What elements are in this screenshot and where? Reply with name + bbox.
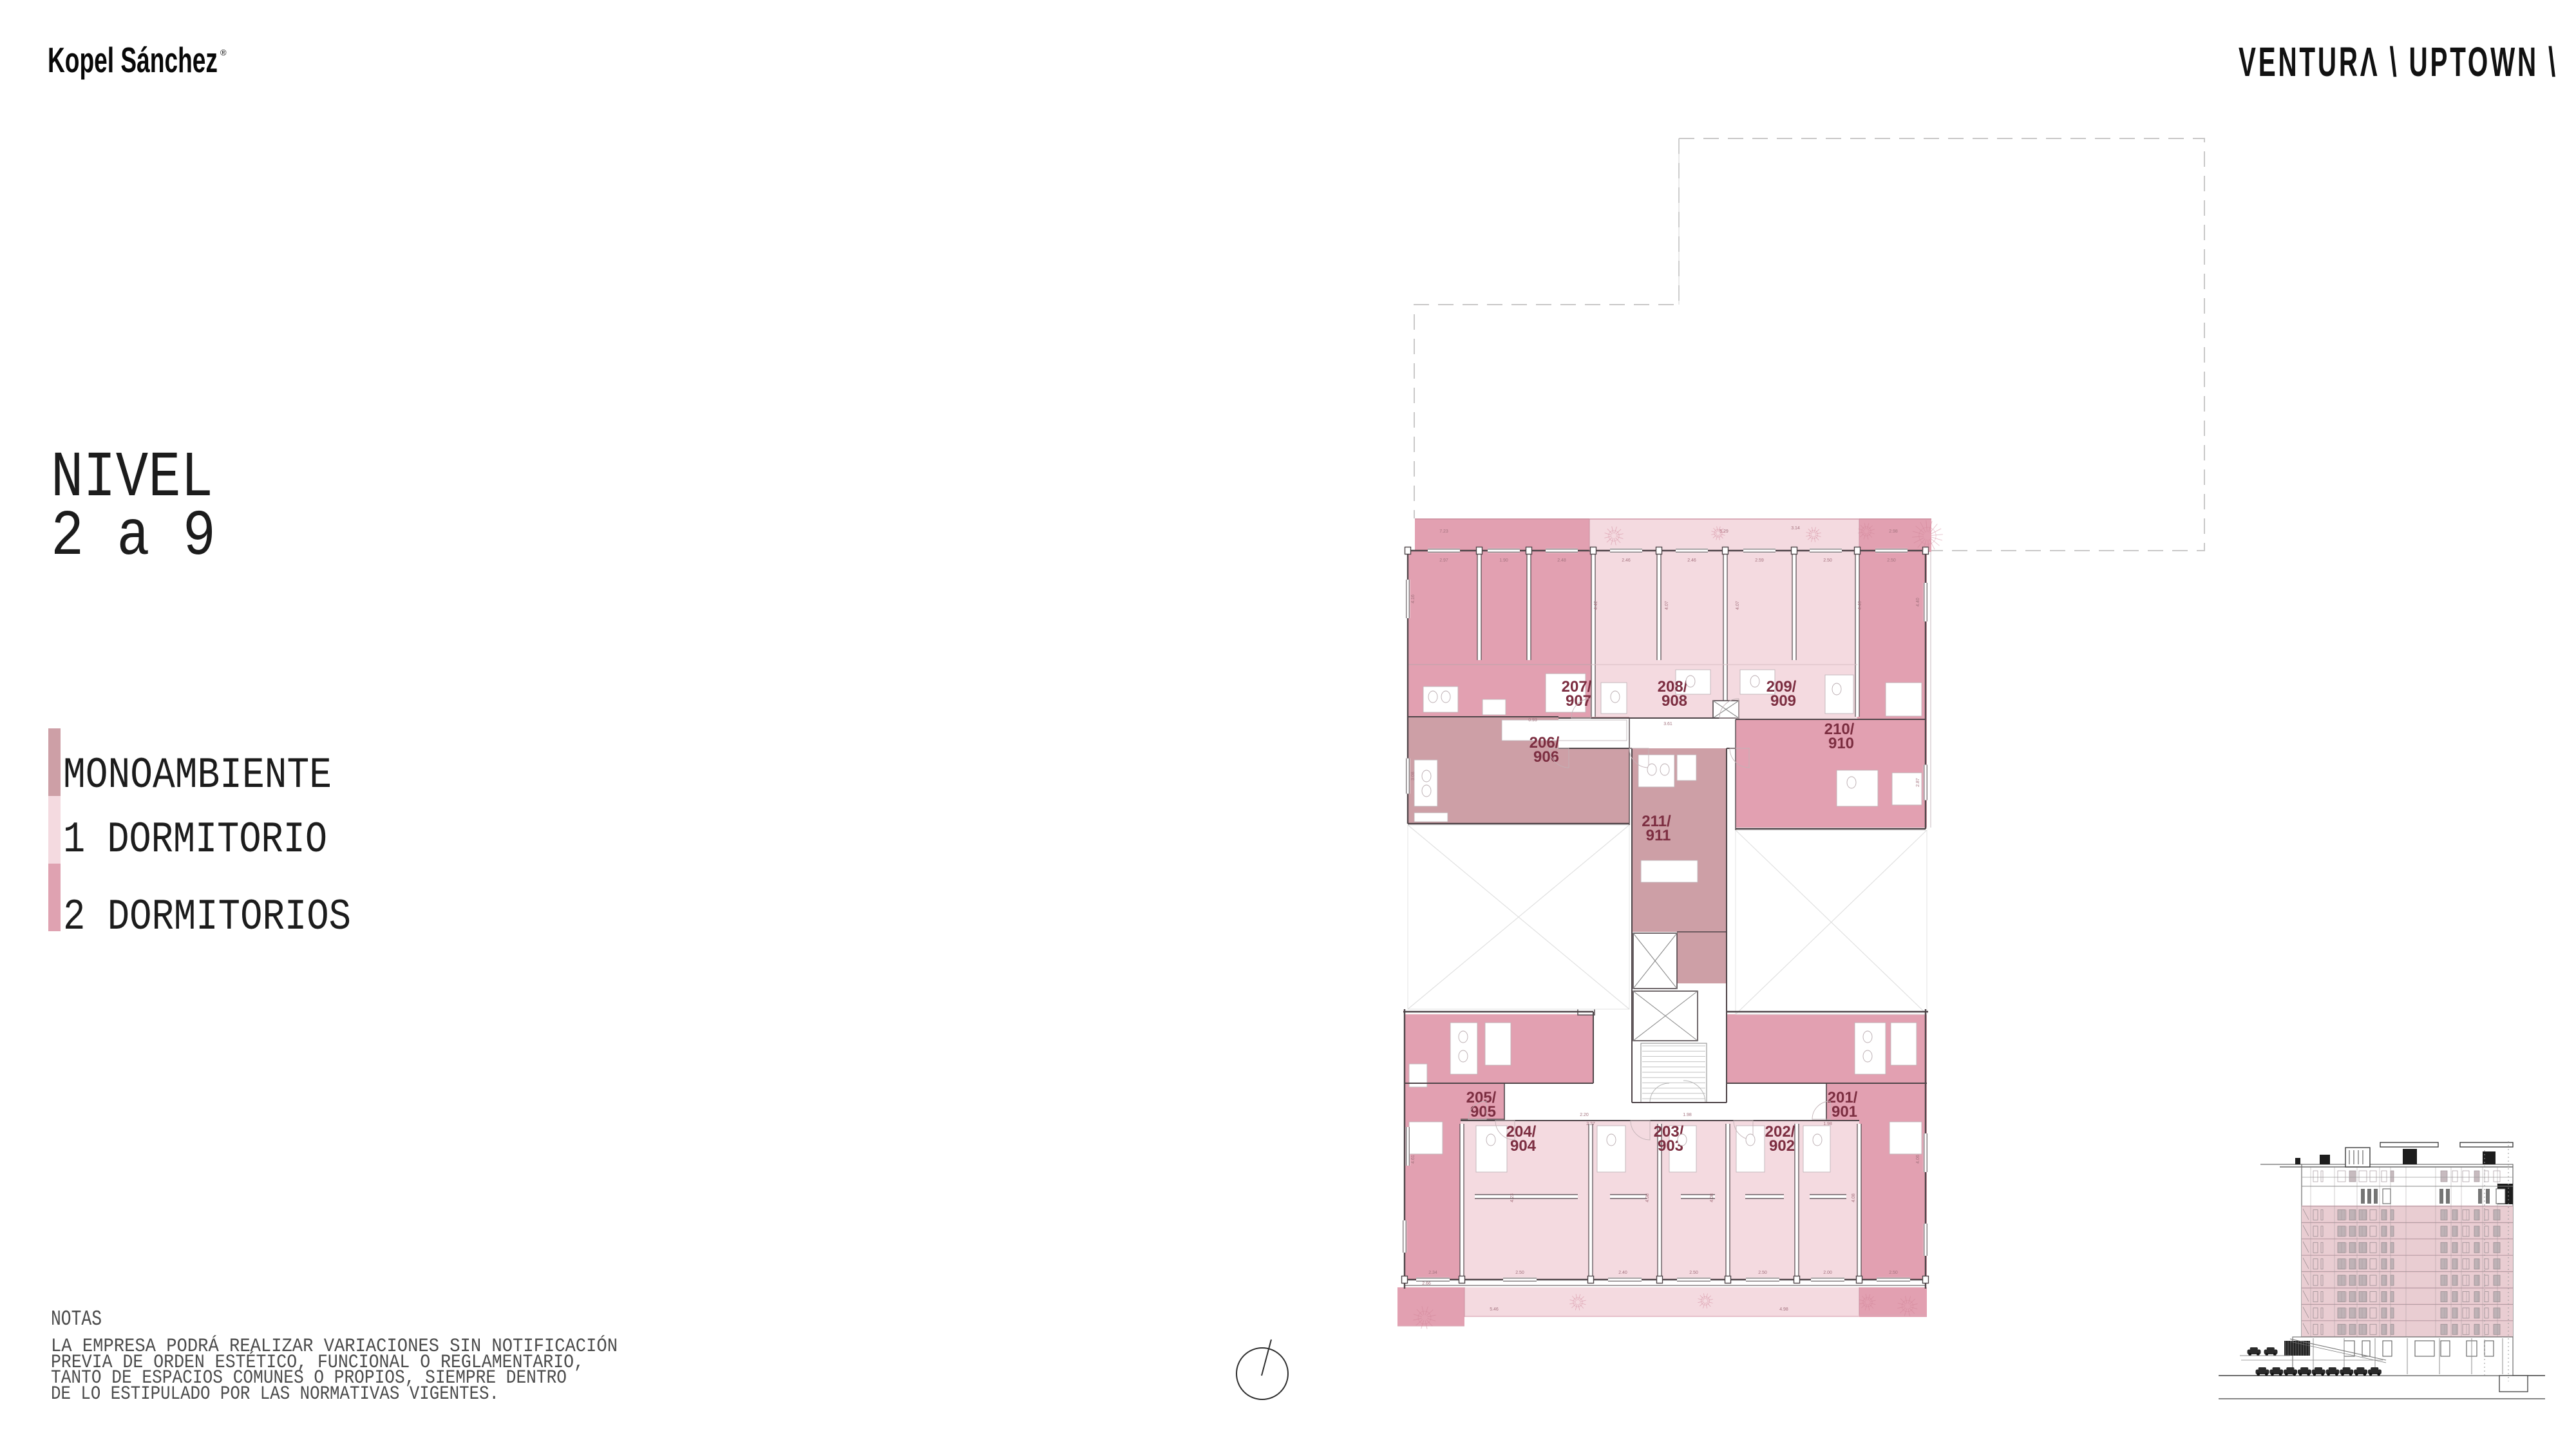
- svg-text:4.07: 4.07: [1736, 601, 1740, 610]
- svg-text:5.46: 5.46: [1490, 1307, 1499, 1312]
- svg-text:908: 908: [1662, 692, 1687, 710]
- svg-text:4.07: 4.07: [1665, 601, 1669, 610]
- svg-text:901: 901: [1832, 1103, 1857, 1121]
- svg-text:VENTURΛ \ UPTOWN \: VENTURΛ \ UPTOWN \: [2239, 39, 2558, 85]
- svg-text:2.00: 2.00: [1823, 1271, 1832, 1275]
- svg-text:2.46: 2.46: [1687, 558, 1696, 563]
- svg-text:1.98: 1.98: [1683, 1113, 1692, 1117]
- svg-text:2.50: 2.50: [1515, 1271, 1524, 1275]
- svg-text:2.98: 2.98: [1889, 529, 1898, 534]
- svg-text:1 DORMITORIO: 1 DORMITORIO: [63, 815, 327, 865]
- svg-text:2.50: 2.50: [1889, 1271, 1898, 1275]
- svg-text:4.42: 4.42: [1594, 601, 1598, 610]
- svg-text:4.40: 4.40: [1916, 598, 1920, 607]
- svg-text:4.08: 4.08: [1645, 1193, 1650, 1202]
- svg-text:2 a 9: 2 a 9: [51, 501, 216, 574]
- svg-text:4.98: 4.98: [1779, 1307, 1788, 1312]
- svg-text:1.90: 1.90: [1499, 558, 1508, 563]
- svg-text:2.46: 2.46: [1622, 558, 1631, 563]
- svg-text:2.50: 2.50: [1887, 558, 1896, 563]
- svg-text:2.34: 2.34: [1428, 1271, 1437, 1275]
- svg-text:®: ®: [220, 48, 227, 57]
- svg-text:2.87: 2.87: [1916, 778, 1920, 787]
- svg-text:907: 907: [1566, 692, 1591, 710]
- svg-text:2.20: 2.20: [1580, 1113, 1589, 1117]
- svg-text:Kopel Sánchez: Kopel Sánchez: [48, 40, 218, 80]
- svg-text:4.16: 4.16: [1411, 594, 1416, 603]
- svg-text:MONOAMBIENTE: MONOAMBIENTE: [63, 751, 332, 800]
- svg-text:2.59: 2.59: [1755, 558, 1764, 563]
- svg-text:DE LO ESTIPULADO POR LAS NORMA: DE LO ESTIPULADO POR LAS NORMATIVAS VIGE…: [51, 1383, 499, 1405]
- svg-text:1.98: 1.98: [1823, 1122, 1832, 1126]
- svg-text:909: 909: [1770, 692, 1796, 710]
- svg-text:2.97: 2.97: [1439, 558, 1448, 563]
- svg-text:2.50: 2.50: [1823, 558, 1832, 563]
- svg-text:4.08: 4.08: [1851, 1193, 1856, 1202]
- svg-text:4.06: 4.06: [1916, 1155, 1920, 1164]
- svg-text:2 DORMITORIOS: 2 DORMITORIOS: [63, 893, 351, 942]
- svg-text:2.66: 2.66: [1422, 1282, 1431, 1286]
- svg-text:906: 906: [1533, 748, 1559, 766]
- svg-text:2.48: 2.48: [1557, 558, 1566, 563]
- svg-text:910: 910: [1828, 735, 1854, 752]
- svg-text:4.23: 4.23: [1510, 1193, 1515, 1202]
- svg-text:3.61: 3.61: [1663, 722, 1672, 726]
- svg-text:4.61: 4.61: [1411, 1155, 1416, 1164]
- svg-text:2.40: 2.40: [1618, 1271, 1627, 1275]
- svg-text:0.93: 0.93: [1528, 718, 1537, 723]
- svg-text:4.08: 4.08: [1710, 1193, 1714, 1202]
- svg-text:4.40: 4.40: [1858, 601, 1862, 610]
- svg-text:2.50: 2.50: [1689, 1271, 1698, 1275]
- svg-text:NOTAS: NOTAS: [51, 1307, 102, 1331]
- svg-text:902: 902: [1769, 1137, 1795, 1155]
- svg-text:911: 911: [1646, 827, 1671, 844]
- svg-text:7.23: 7.23: [1439, 529, 1448, 534]
- svg-text:2.27: 2.27: [1586, 1122, 1595, 1126]
- svg-text:3.08: 3.08: [1411, 772, 1416, 781]
- svg-text:2.50: 2.50: [1758, 1271, 1767, 1275]
- svg-text:3.14: 3.14: [1791, 526, 1800, 531]
